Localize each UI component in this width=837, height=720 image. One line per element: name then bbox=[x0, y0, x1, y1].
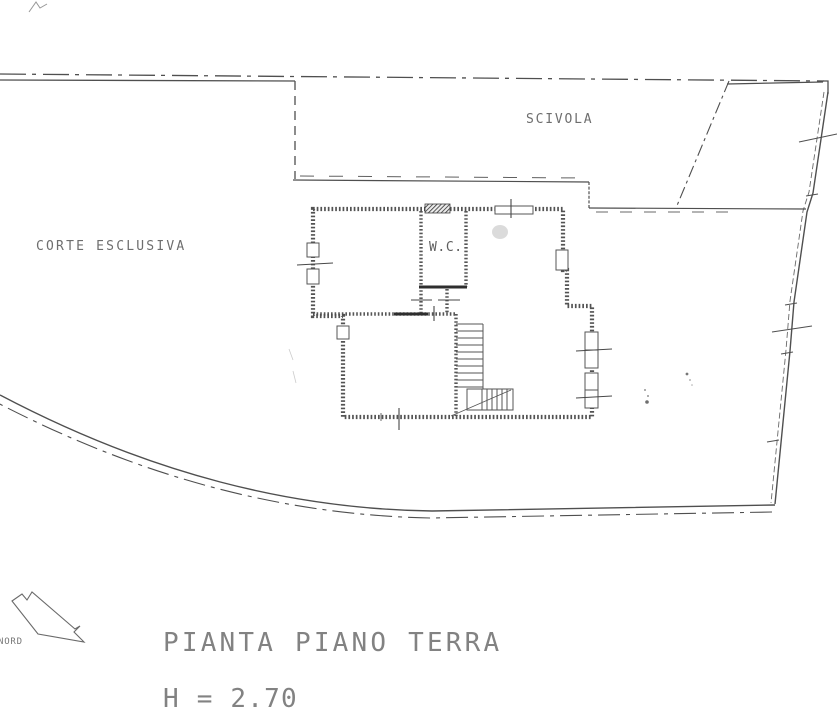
windows bbox=[307, 204, 598, 408]
plan-title: PIANTA PIANO TERRA bbox=[163, 628, 502, 658]
label-corte-esclusiva: CORTE ESCLUSIVA bbox=[36, 239, 186, 254]
scivola-boundary bbox=[293, 81, 806, 212]
floor-plan-drawing bbox=[0, 0, 837, 720]
label-wc: W.C. bbox=[429, 240, 463, 255]
wc-vent-hatch bbox=[425, 204, 450, 213]
label-scivola: SCIVOLA bbox=[526, 112, 593, 127]
north-arrow-icon bbox=[12, 592, 84, 642]
label-nord: NORD bbox=[0, 637, 23, 647]
site-boundary bbox=[0, 74, 837, 518]
floor-plan-sheet: CORTE ESCLUSIVA SCIVOLA W.C. NORD PIANTA… bbox=[0, 0, 837, 720]
ramp-diagonal bbox=[676, 81, 729, 208]
plan-height-note: H = 2.70 bbox=[163, 684, 298, 714]
staircase bbox=[451, 324, 513, 416]
